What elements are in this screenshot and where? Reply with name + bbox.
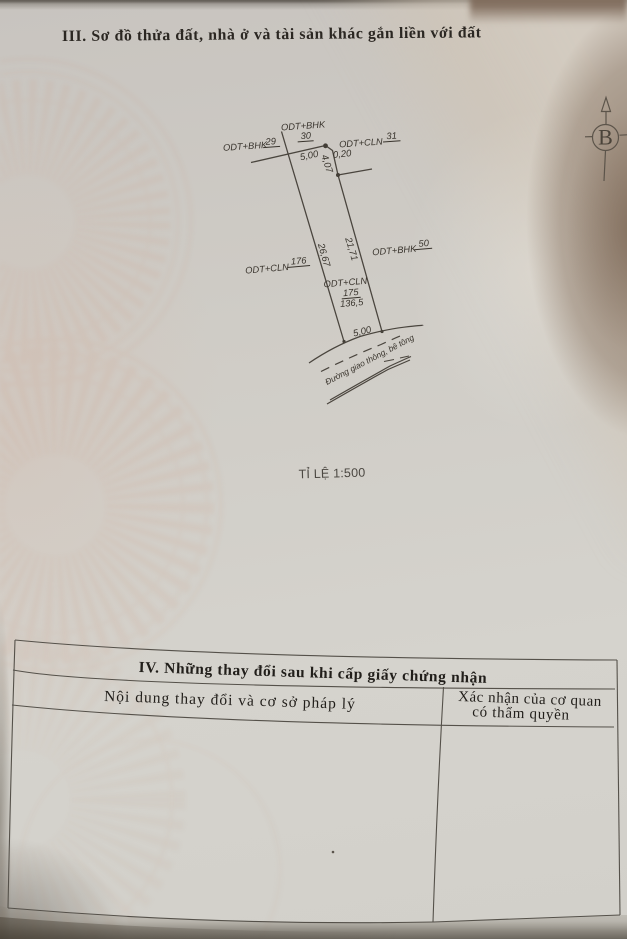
svg-text:21,71: 21,71	[342, 235, 360, 262]
svg-text:26,67: 26,67	[315, 241, 333, 269]
svg-text:TỈ LỆ 1:500: TỈ LỆ 1:500	[298, 465, 365, 482]
svg-text:0,20: 0,20	[332, 148, 352, 161]
svg-text:29: 29	[264, 136, 276, 147]
svg-text:có thẩm quyền: có thẩm quyền	[472, 704, 570, 723]
svg-text:ODT+BHK: ODT+BHK	[372, 244, 418, 258]
svg-text:ODT+BHK: ODT+BHK	[223, 140, 269, 153]
svg-text:31: 31	[386, 130, 397, 141]
svg-text:176: 176	[290, 255, 307, 266]
svg-text:30: 30	[300, 130, 312, 141]
svg-text:ODT+CLN: ODT+CLN	[245, 262, 290, 276]
svg-text:B: B	[598, 125, 613, 150]
svg-text:5,00: 5,00	[352, 324, 373, 339]
svg-text:Đường giao thông, bê tông: Đường giao thông, bê tông	[323, 332, 416, 387]
svg-text:III. Sơ đồ thửa đất, nhà ở và: III. Sơ đồ thửa đất, nhà ở và tài sản kh…	[62, 24, 482, 45]
svg-text:ODT+CLN: ODT+CLN	[339, 136, 384, 149]
svg-text:Nội dung thay đổi và cơ sở phá: Nội dung thay đổi và cơ sở pháp lý	[104, 688, 356, 713]
svg-text:175: 175	[343, 287, 360, 298]
svg-text:50: 50	[418, 238, 430, 249]
svg-text:136,5: 136,5	[340, 297, 365, 309]
